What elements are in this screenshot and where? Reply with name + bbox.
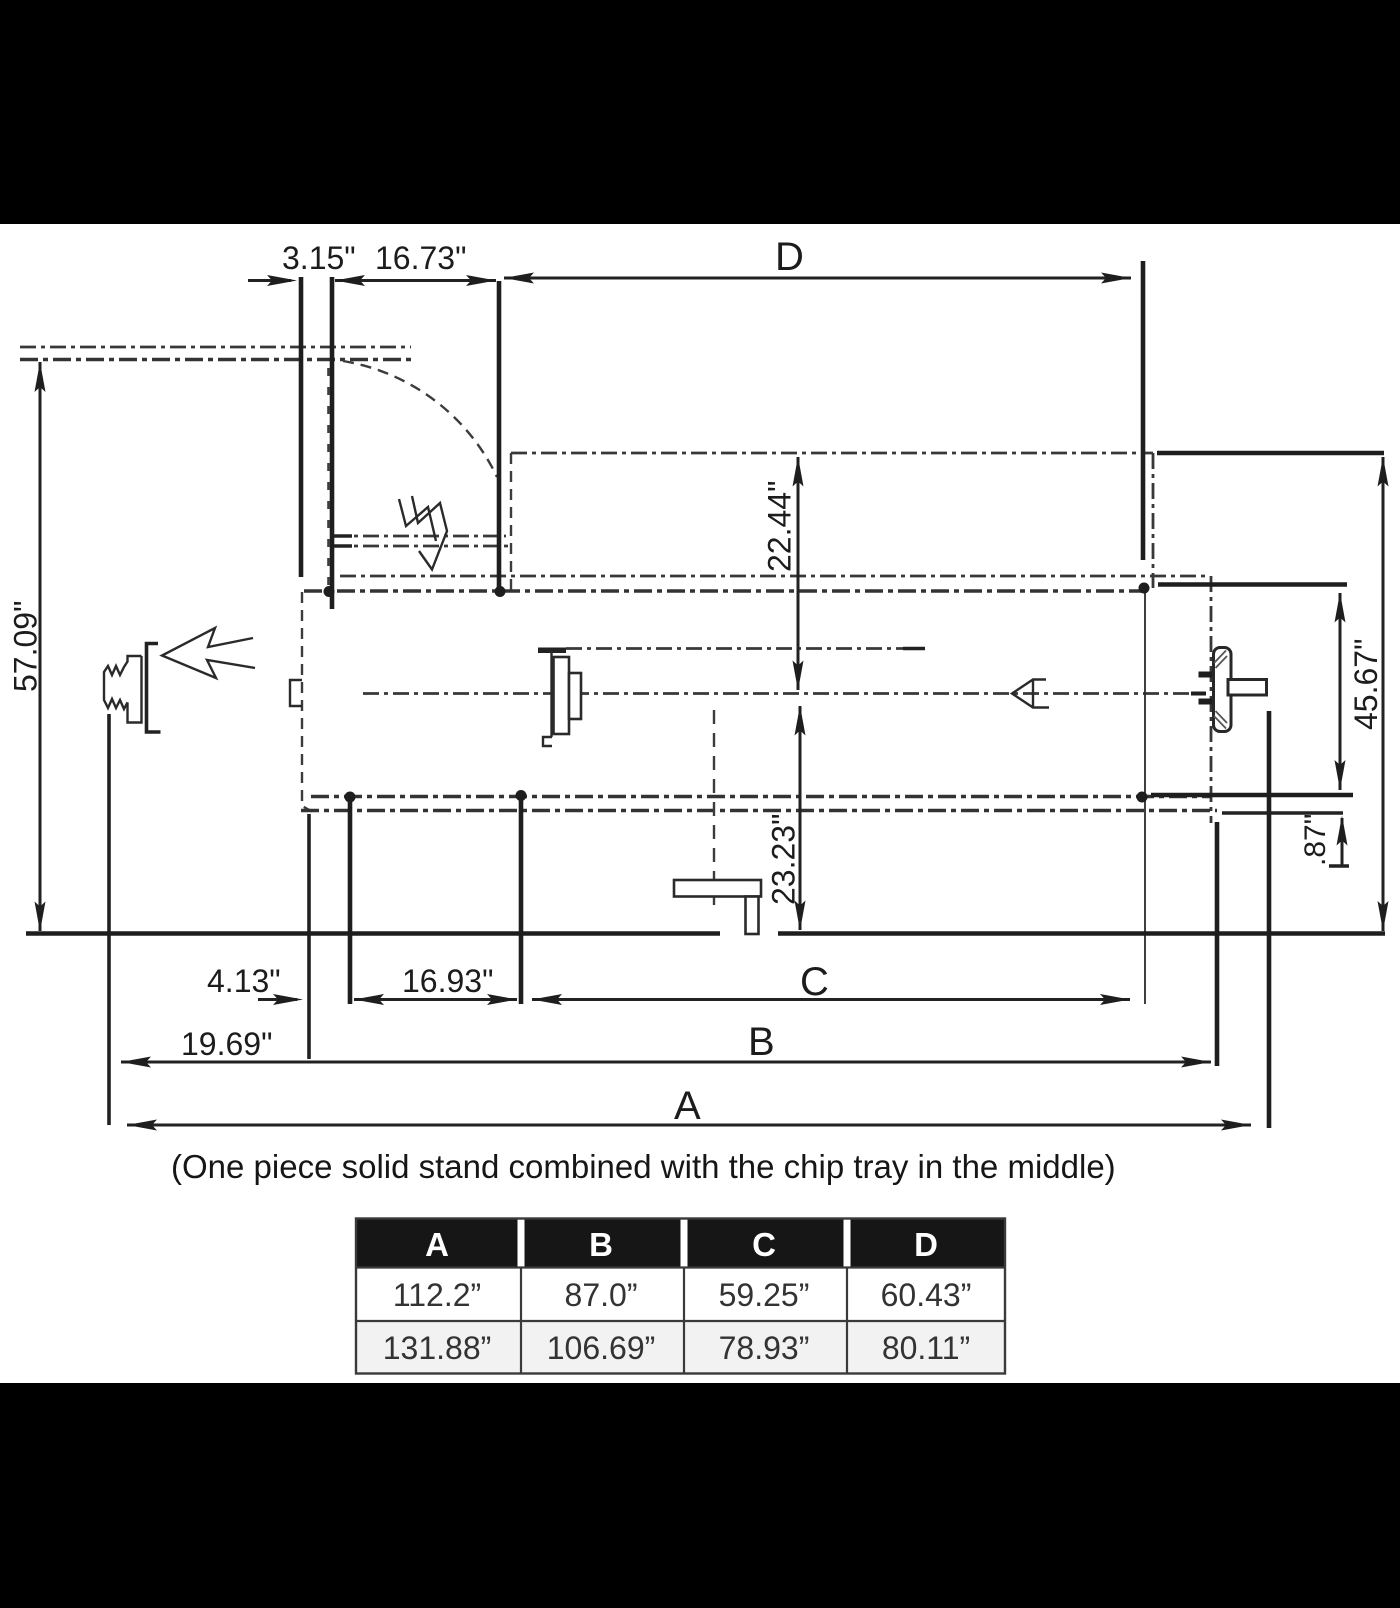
svg-text:16.73": 16.73" — [375, 240, 466, 276]
svg-text:23.23": 23.23" — [766, 814, 802, 905]
svg-text:106.69”: 106.69” — [547, 1330, 656, 1366]
svg-text:57.09": 57.09" — [8, 601, 44, 692]
svg-text:19.69": 19.69" — [181, 1026, 272, 1062]
svg-text:4.13": 4.13" — [207, 963, 281, 999]
svg-text:78.93”: 78.93” — [719, 1330, 810, 1366]
svg-text:C: C — [752, 1226, 776, 1263]
svg-text:B: B — [748, 1020, 775, 1064]
svg-text:(One piece solid stand combine: (One piece solid stand combined with the… — [171, 1148, 1116, 1185]
svg-text:D: D — [914, 1226, 938, 1263]
svg-text:59.25”: 59.25” — [719, 1277, 810, 1313]
svg-text:C: C — [800, 960, 829, 1004]
svg-text:45.67": 45.67" — [1348, 639, 1384, 730]
svg-text:131.88”: 131.88” — [383, 1330, 492, 1366]
svg-text:87.0”: 87.0” — [565, 1277, 638, 1313]
svg-text:D: D — [775, 235, 804, 279]
svg-text:B: B — [589, 1226, 613, 1263]
svg-text:A: A — [674, 1084, 701, 1128]
svg-text:16.93": 16.93" — [402, 963, 493, 999]
svg-text:22.44": 22.44" — [762, 481, 798, 572]
svg-text:A: A — [425, 1226, 449, 1263]
svg-text:3.15": 3.15" — [282, 240, 356, 276]
svg-text:.87": .87" — [1299, 814, 1332, 866]
svg-text:80.11”: 80.11” — [882, 1330, 970, 1366]
svg-text:60.43”: 60.43” — [881, 1277, 972, 1313]
svg-text:112.2”: 112.2” — [393, 1277, 481, 1313]
